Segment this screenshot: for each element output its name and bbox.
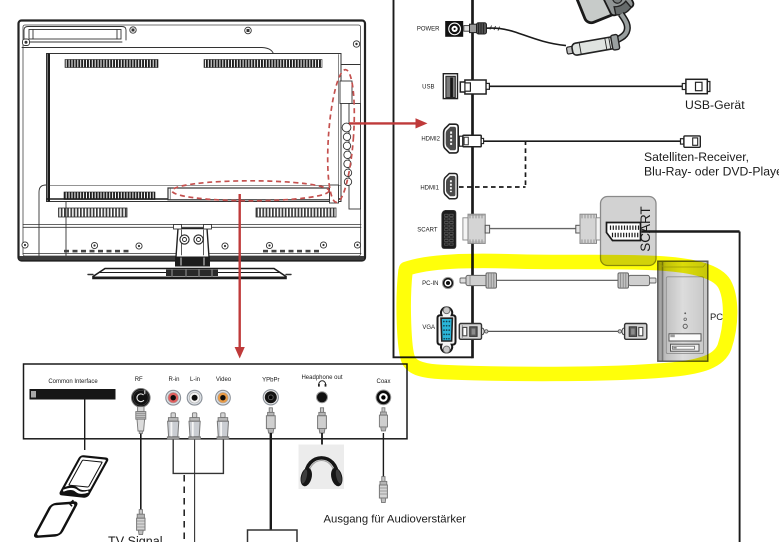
svg-text:Video: Video: [216, 377, 232, 383]
svg-text:Ausgang für Audioverstärker: Ausgang für Audioverstärker: [324, 513, 467, 525]
svg-text:Blu-Ray- oder DVD-Player: Blu-Ray- oder DVD-Player: [644, 164, 779, 178]
svg-text:POWER: POWER: [417, 27, 440, 33]
svg-text:Headphone out: Headphone out: [301, 375, 342, 381]
svg-text:YPbPr: YPbPr: [262, 378, 279, 384]
svg-text:Common Interface: Common Interface: [48, 379, 98, 385]
svg-text:HDMI1: HDMI1: [420, 186, 439, 192]
svg-text:SCART: SCART: [638, 206, 653, 252]
svg-text:SCART: SCART: [417, 228, 438, 234]
svg-text:USB: USB: [422, 85, 434, 91]
svg-text:PC-IN: PC-IN: [422, 281, 438, 287]
svg-text:PC: PC: [710, 311, 723, 322]
svg-text:RF: RF: [135, 377, 143, 383]
svg-text:HDMI2: HDMI2: [421, 137, 440, 143]
svg-text:L-in: L-in: [190, 377, 200, 383]
svg-text:Satelliten-Receiver,: Satelliten-Receiver,: [644, 150, 749, 164]
svg-text:TV Signal: TV Signal: [108, 535, 163, 542]
svg-text:R-in: R-in: [168, 377, 179, 383]
svg-text:VGA: VGA: [422, 325, 435, 331]
svg-text:USB-Gerät: USB-Gerät: [685, 98, 745, 112]
svg-text:Coax: Coax: [376, 379, 390, 385]
